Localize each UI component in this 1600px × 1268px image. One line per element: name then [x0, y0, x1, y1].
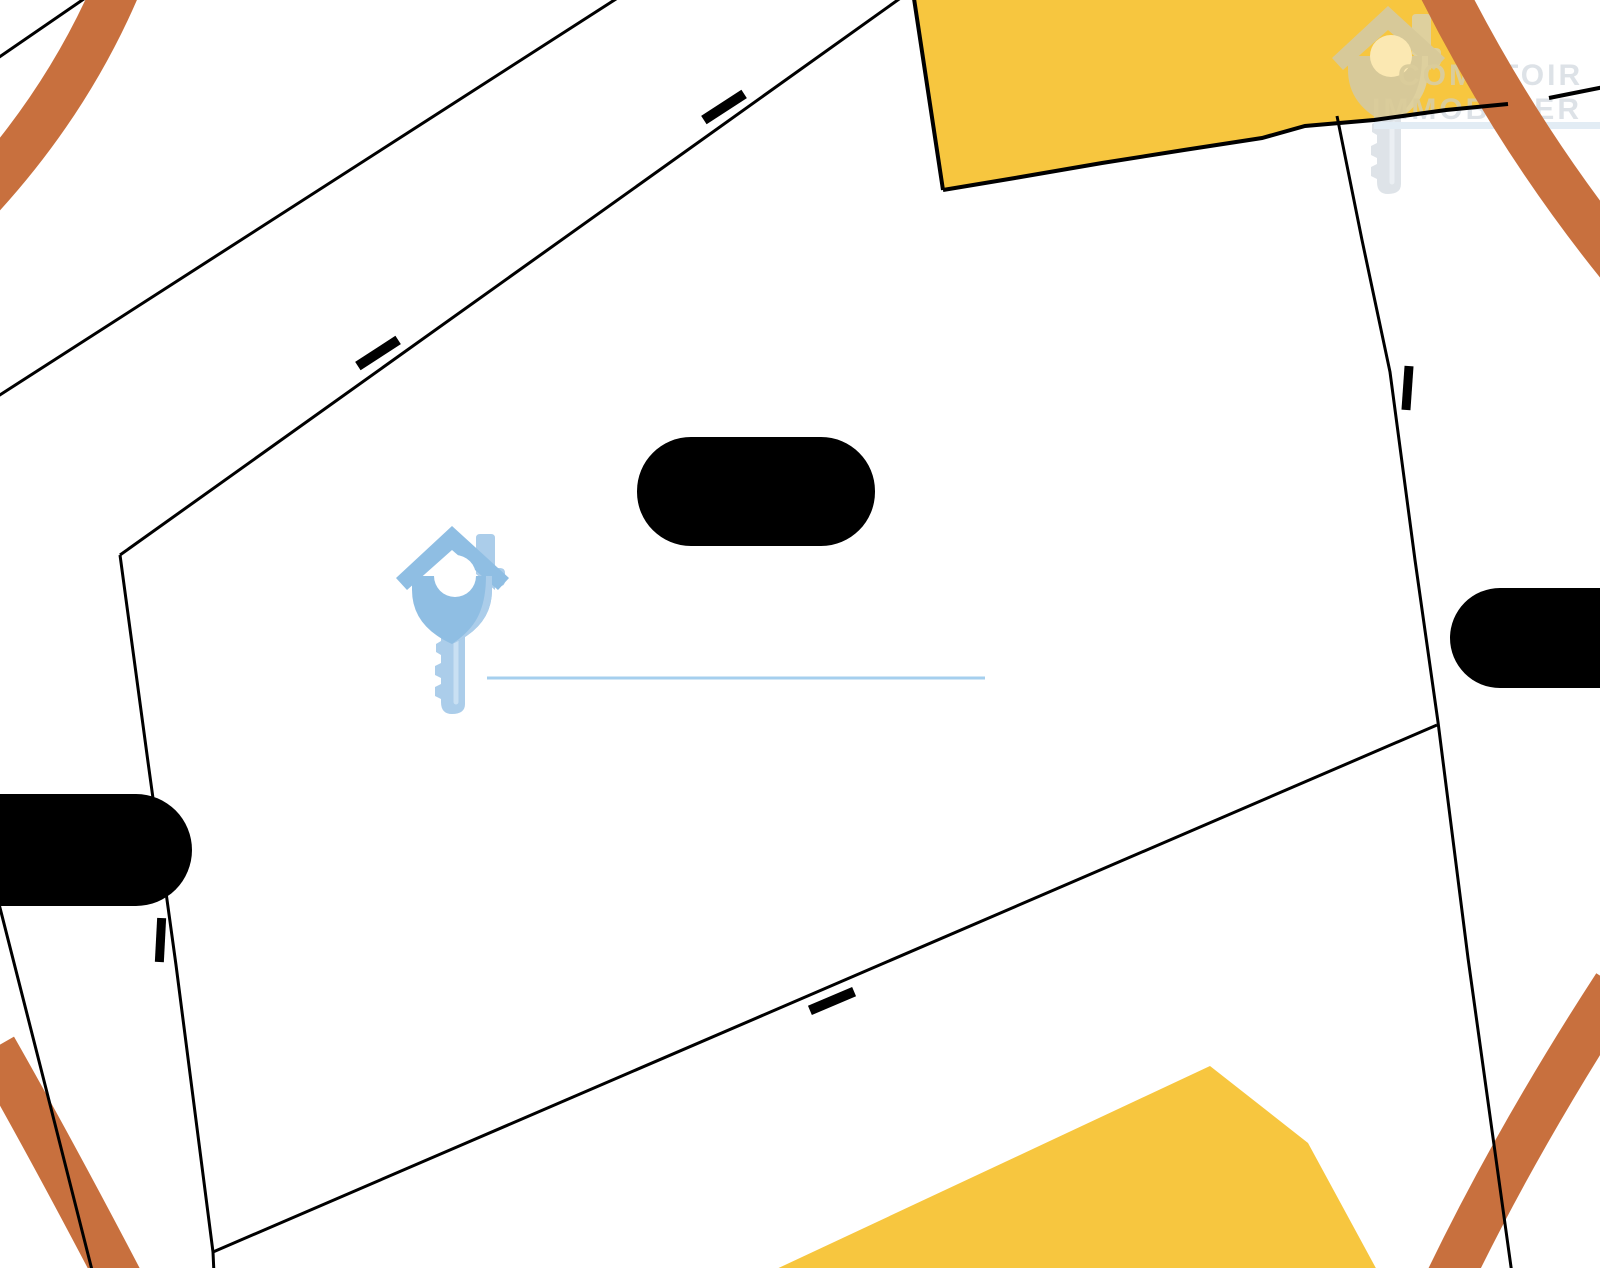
cadastral-map-canvas: COMPTOIR IMMOBILIER	[0, 0, 1600, 1268]
map-background	[0, 0, 1600, 1268]
redaction-blob-center	[637, 437, 875, 546]
key-hole	[434, 555, 476, 597]
redaction-blob-left	[0, 794, 192, 906]
redaction-blob-right	[1450, 588, 1600, 688]
cadastral-map: COMPTOIR IMMOBILIER	[0, 0, 1600, 1268]
